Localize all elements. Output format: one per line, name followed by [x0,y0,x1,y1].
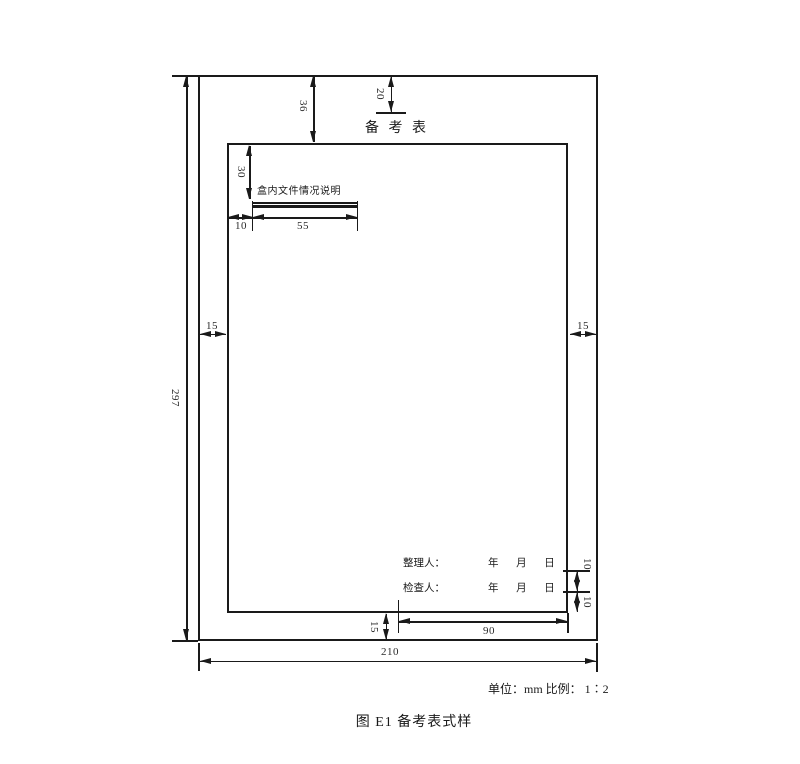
arrowhead-left-icon [399,618,410,624]
arrowhead-down-icon [310,131,316,142]
organizer-label: 整理人： [403,555,445,570]
arrowhead-up-icon [183,76,189,87]
arrowhead-down-icon [574,580,580,591]
arrowhead-up-icon [388,76,394,87]
dim-label: 10 [581,558,593,570]
figure-caption: 图 E1 备考表式样 [356,711,473,731]
dim-label: 30 [235,166,247,178]
dimension-line [399,621,568,623]
arrowhead-down-icon [183,629,189,640]
writing-line-bottom [252,205,357,208]
arrowhead-up-icon [383,613,389,624]
dim-label: 90 [483,625,495,637]
form-title: 备 考 表 [365,117,429,137]
figure-e1-drawing: 备 考 表 297 36 20 30 盒内文件情况说明 [0,0,800,764]
tick-line [376,112,406,114]
organizer-date-label: 年 月 日 [488,555,555,570]
dim-label: 36 [297,100,309,112]
dim-label: 55 [297,220,309,232]
dim-label: 10 [581,596,593,608]
checker-date-label: 年 月 日 [488,580,555,595]
arrowhead-up-icon [246,145,252,156]
dim-label: 20 [374,88,386,100]
arrowhead-down-icon [246,188,252,199]
arrowhead-left-icon [200,658,211,664]
dim-label: 10 [235,220,247,232]
dim-label: 15 [577,320,589,332]
arrowhead-down-icon [383,629,389,640]
arrowhead-right-icon [556,618,567,624]
dim-label: 210 [381,646,399,658]
arrowhead-down-icon [574,601,580,612]
arrowhead-right-icon [585,658,596,664]
tick-line [398,600,400,633]
arrowhead-up-icon [310,76,316,87]
dim-label: 15 [368,621,380,633]
units-scale-note: 单位：mm 比例： 1∶2 [488,680,609,697]
inner-frame-rect [227,143,568,613]
dim-label: 297 [169,389,181,407]
arrowhead-left-icon [253,214,264,220]
checker-label: 检查人： [403,580,445,595]
dim-label: 15 [206,320,218,332]
dimension-line [186,77,188,640]
arrowhead-down-icon [388,101,394,112]
arrowhead-right-icon [346,214,357,220]
writing-line-top [252,202,357,204]
box-note-label: 盒内文件情况说明 [257,182,341,197]
dimension-line [200,661,596,663]
